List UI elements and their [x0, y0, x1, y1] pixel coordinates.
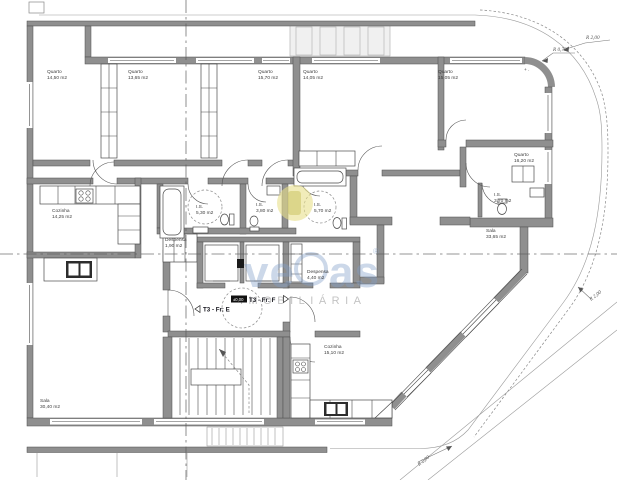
svg-text:Quarto: Quarto — [258, 69, 273, 75]
svg-text:Quarto: Quarto — [438, 69, 453, 75]
svg-text:15,10 m2: 15,10 m2 — [324, 350, 344, 356]
svg-text:5,70 m2: 5,70 m2 — [314, 208, 332, 214]
radius-annotations: R 2,00 R 0,70 R 2,00 R 2,00 + . — [416, 35, 610, 468]
svg-text:15,70 m2: 15,70 m2 — [258, 75, 278, 81]
room-label-sala-3040: Sala30,40 m2 — [40, 398, 60, 410]
svg-text:Quarto: Quarto — [128, 69, 143, 75]
svg-text:30,40 m2: 30,40 m2 — [40, 404, 60, 410]
room-label-is-530: I.S.5,30 m2 — [196, 204, 214, 216]
svg-text:13,65 m2: 13,65 m2 — [128, 75, 148, 81]
counter-e-side — [118, 204, 140, 244]
room-label-quarto-1450: Quarto14,50 m2 — [47, 69, 67, 81]
svg-text:15,05 m2: 15,05 m2 — [438, 75, 458, 81]
svg-text:Quarto: Quarto — [514, 152, 529, 158]
floor-plan-canvas: ve as ® IMOBILIÁRIA Quarto14,50 m2 Quart… — [0, 0, 617, 480]
svg-text:I.S.: I.S. — [314, 202, 321, 208]
door-direction-icon-e — [195, 306, 200, 313]
stove-e — [76, 189, 93, 203]
radius-annotation-top: R 2,00 — [585, 35, 600, 41]
floor-plan-drawing: ve as ® IMOBILIÁRIA Quarto14,50 m2 Quart… — [0, 0, 617, 480]
room-label-quarto-1570: Quarto15,70 m2 — [258, 69, 278, 81]
toilet-is570 — [333, 218, 341, 229]
bottom-balcony-railing — [207, 427, 283, 446]
room-label-cozinha-1425: Cozinha14,25 m2 — [52, 208, 72, 220]
svg-text:4,40 m2: 4,40 m2 — [307, 275, 325, 281]
room-label-quarto-1365: Quarto13,65 m2 — [128, 69, 148, 81]
bottom-parapet — [27, 447, 327, 453]
room-label-is-570: I.S.5,70 m2 — [314, 202, 332, 214]
svg-text:I.S.: I.S. — [196, 204, 203, 210]
level-badge-value: ±0,00 — [233, 297, 244, 302]
svg-text:16,20 m2: 16,20 m2 — [514, 158, 534, 164]
toilet-is530 — [221, 214, 229, 225]
apartment-label-f: T3 - Fr: F — [249, 297, 276, 304]
stove-f — [293, 360, 308, 373]
watermark-brand-left: ve — [244, 248, 295, 297]
counter-f-side — [291, 344, 310, 418]
toilet-is380 — [250, 216, 258, 226]
room-label-is-380: I.S.3,80 m2 — [256, 202, 274, 214]
svg-text:14,05 m2: 14,05 m2 — [303, 75, 323, 81]
svg-text:Sala: Sala — [40, 398, 50, 404]
corner-marks: + . — [524, 68, 529, 73]
apartment-label-e: T3 - Fr: E — [203, 307, 230, 314]
room-label-quarto-1405: Quarto14,05 m2 — [303, 69, 323, 81]
watermark-registered: ® — [373, 247, 379, 256]
svg-text:Sala: Sala — [486, 228, 496, 234]
room-label-is-370: I.S.3,70 m2 — [494, 192, 512, 204]
svg-text:Despensa: Despensa — [165, 237, 187, 243]
svg-text:14,25 m2: 14,25 m2 — [52, 214, 72, 220]
svg-text:5,30 m2: 5,30 m2 — [196, 210, 214, 216]
sink-is380 — [267, 186, 280, 195]
svg-text:Cozinha: Cozinha — [52, 208, 70, 214]
svg-text:1,90 m2: 1,90 m2 — [165, 243, 183, 249]
svg-text:Quarto: Quarto — [303, 69, 318, 75]
radius-annotation-right: R 2,00 — [588, 289, 603, 303]
svg-text:Cozinha: Cozinha — [324, 344, 342, 350]
room-label-quarto-1620: Quarto16,20 m2 — [514, 152, 534, 164]
svg-text:Quarto: Quarto — [47, 69, 62, 75]
stairs — [180, 338, 270, 415]
room-label-sala-3365: Sala33,65 m2 — [486, 228, 506, 240]
toilet-is370 — [498, 204, 507, 215]
svg-text:33,65 m2: 33,65 m2 — [486, 234, 506, 240]
radius-annotation-corner: R 0,70 — [552, 47, 567, 53]
room-label-cozinha-1510: Cozinha15,10 m2 — [324, 344, 344, 356]
svg-text:14,50 m2: 14,50 m2 — [47, 75, 67, 81]
svg-text:3,80 m2: 3,80 m2 — [256, 208, 274, 214]
sink-is370 — [530, 188, 544, 197]
svg-text:Despensa: Despensa — [307, 269, 329, 275]
site-marker-box — [29, 2, 44, 13]
svg-text:I.S.: I.S. — [494, 192, 501, 198]
elevator-car-1 — [205, 245, 238, 281]
svg-text:3,70 m2: 3,70 m2 — [494, 198, 512, 204]
svg-text:I.S.: I.S. — [256, 202, 263, 208]
elevator-beam-icon — [237, 259, 244, 268]
